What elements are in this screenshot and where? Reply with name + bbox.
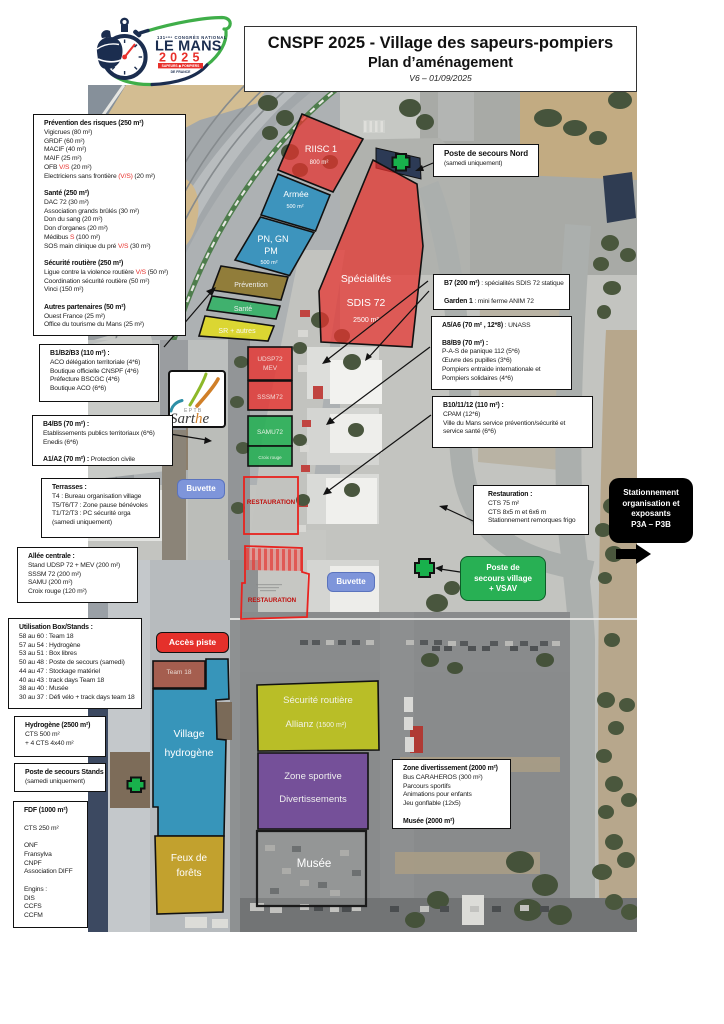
svg-text:SAPEURS ◆ POMPIERS: SAPEURS ◆ POMPIERS — [162, 64, 201, 68]
svg-text:SDIS 72: SDIS 72 — [347, 298, 386, 309]
svg-text:PN, GN: PN, GN — [257, 234, 288, 244]
svg-text:Sarthe: Sarthe — [170, 411, 210, 425]
svg-text:Croix rouge: Croix rouge — [258, 455, 282, 460]
svg-text:2025: 2025 — [159, 51, 204, 65]
svg-text:Feux de: Feux de — [171, 853, 208, 864]
svg-text:Village: Village — [173, 729, 204, 740]
svg-text:Sécurité routière: Sécurité routière — [283, 695, 353, 706]
svg-text:SR + autres: SR + autres — [218, 328, 256, 335]
svg-text:DE FRANCE: DE FRANCE — [171, 70, 192, 74]
svg-text:Team 18: Team 18 — [167, 669, 192, 676]
svg-text:Divertissements: Divertissements — [279, 794, 347, 805]
svg-text:MEV: MEV — [263, 365, 278, 372]
svg-text:hydrogène: hydrogène — [164, 748, 213, 759]
svg-text:Spécialités: Spécialités — [341, 274, 391, 285]
svg-text:RESTAURATION: RESTAURATION — [248, 597, 297, 604]
svg-text:SSSM72: SSSM72 — [257, 394, 283, 401]
svg-text:RESTAURATION: RESTAURATION — [247, 499, 296, 506]
svg-text:Prévention: Prévention — [234, 282, 268, 289]
svg-text:Santé: Santé — [234, 306, 252, 313]
svg-text:forêts: forêts — [176, 868, 201, 879]
svg-text:Armée: Armée — [283, 189, 309, 199]
svg-text:500 m²: 500 m² — [286, 204, 303, 210]
svg-text:Musée: Musée — [297, 858, 332, 870]
svg-text:Zone sportive: Zone sportive — [284, 771, 342, 782]
svg-text:500 m²: 500 m² — [260, 260, 277, 266]
svg-text:2500 m²: 2500 m² — [353, 317, 379, 324]
svg-text:UDSP72: UDSP72 — [257, 356, 283, 363]
svg-text:RIISC 1: RIISC 1 — [305, 144, 337, 154]
svg-text:SAMU72: SAMU72 — [257, 429, 283, 436]
svg-text:800 m²: 800 m² — [310, 160, 329, 166]
svg-text:PM: PM — [264, 246, 278, 256]
